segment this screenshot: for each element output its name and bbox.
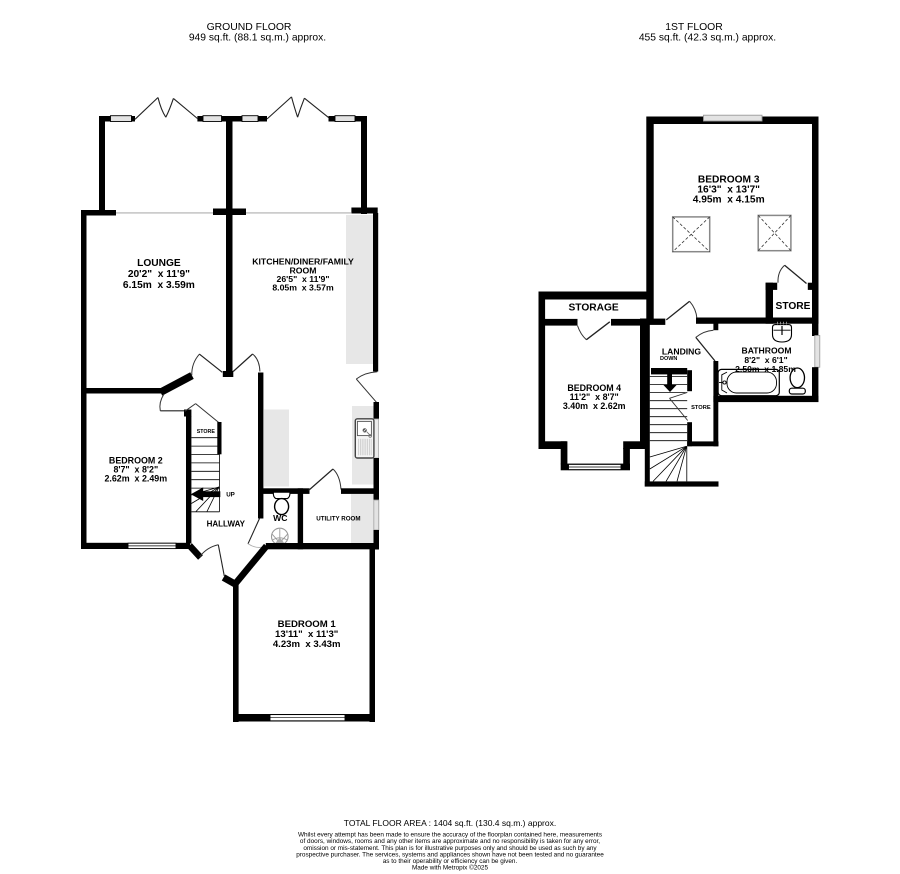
svg-text:UTILITY ROOM: UTILITY ROOM <box>316 516 360 523</box>
svg-text:455 sq.ft. (42.3 sq.m.) approx: 455 sq.ft. (42.3 sq.m.) approx. <box>639 33 776 44</box>
svg-text:Made with Metropix ©2025: Made with Metropix ©2025 <box>412 864 489 872</box>
svg-text:4.23m x 3.43m: 4.23m x 3.43m <box>273 639 341 650</box>
svg-text:WC: WC <box>273 513 287 523</box>
svg-text:TOTAL FLOOR AREA : 1404 sq.ft.: TOTAL FLOOR AREA : 1404 sq.ft. (130.4 sq… <box>344 818 556 828</box>
svg-text:LOUNGE: LOUNGE <box>137 258 181 269</box>
svg-text:STORE: STORE <box>776 301 811 312</box>
svg-text:4.95m x 4.15m: 4.95m x 4.15m <box>693 195 765 206</box>
svg-text:2.62m x 2.49m: 2.62m x 2.49m <box>104 474 167 484</box>
svg-text:GROUND FLOOR: GROUND FLOOR <box>207 22 292 33</box>
svg-text:20'2" x 11'9": 20'2" x 11'9" <box>128 269 190 280</box>
svg-text:STORE: STORE <box>691 405 711 411</box>
svg-text:1ST FLOOR: 1ST FLOOR <box>665 22 723 33</box>
svg-text:STORAGE: STORAGE <box>568 303 618 314</box>
svg-text:DOWN: DOWN <box>660 356 677 362</box>
svg-text:STORE: STORE <box>197 429 216 435</box>
svg-text:3.40m x 2.62m: 3.40m x 2.62m <box>563 401 626 411</box>
svg-text:8.05m x 3.57m: 8.05m x 3.57m <box>272 282 334 292</box>
svg-text:UP: UP <box>226 491 235 498</box>
svg-text:2.50m x 1.85m: 2.50m x 1.85m <box>735 364 796 374</box>
svg-text:HALLWAY: HALLWAY <box>207 519 246 528</box>
svg-text:6.15m x 3.59m: 6.15m x 3.59m <box>123 280 195 291</box>
svg-text:949 sq.ft. (88.1 sq.m.) approx: 949 sq.ft. (88.1 sq.m.) approx. <box>189 33 326 44</box>
